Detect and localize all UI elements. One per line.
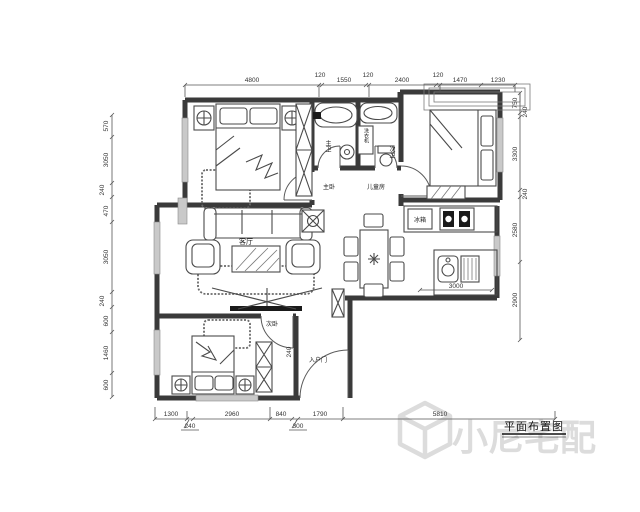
dining-area [344,214,404,297]
dim-label: 240 [522,106,529,117]
bed [192,336,234,394]
kitchen: 冰箱 [404,206,497,295]
coffee-table [232,246,280,272]
room-label-kids-room: 儿童房 [367,183,385,191]
room-label-second-bath: 次卫 [388,145,395,158]
wardrobe [256,342,272,392]
dim-label: 120 [363,72,374,79]
dim-label: 1230 [491,77,506,84]
drawing-title: 平面布置图 [504,420,564,433]
chair [344,237,358,256]
armchair-left [186,240,220,274]
wardrobe [296,104,312,196]
living-room: 客厅 [186,208,324,311]
sink [340,145,354,159]
dim-label: 570 [103,120,110,131]
dim-label: 840 [276,411,287,418]
master-bath: 主卫 [313,103,357,159]
tv-set [212,288,322,311]
washing-machine-label: 洗衣机 [363,127,369,144]
kitchen-sink [438,256,458,282]
sofa [204,208,312,240]
dim-label: 750 [512,97,519,108]
dim-label: 3000 [449,283,464,290]
dimensions-left: 570 3050 240 470 3050 240 600 1460 600 [99,113,114,399]
column-block [178,198,187,224]
dimension-kitchen: 3000 [418,283,494,292]
dim-label: 1460 [103,345,110,360]
double-bed [216,104,280,190]
dim-label: 2960 [225,411,240,418]
dim-entry-wall: 240 [286,346,293,357]
chair [344,262,358,281]
second-bath: 洗衣机 次卫 [358,103,397,166]
window-living-room [154,222,160,274]
washing-machine: 洗衣机 [358,126,373,154]
dim-label: 3050 [103,152,110,167]
fridge-label: 冰箱 [414,216,426,224]
nightstand-left [172,376,190,394]
room-label-master-bath: 主卫 [324,139,331,152]
faucet-icon [313,112,321,119]
dim-label: 300 [293,423,304,430]
dim-label: 2580 [512,222,519,237]
dim-label: 2900 [512,292,519,307]
dim-label: 1790 [313,411,328,418]
dim-label: 5810 [433,411,448,418]
chair [390,262,404,281]
dimensions-right: 750 240 3300 240 2580 2900 [512,91,529,342]
kids-room [427,110,496,199]
dim-label: 470 [103,205,110,216]
dim-label: 1300 [164,411,179,418]
dim-label: 1470 [453,77,468,84]
fridge: 冰箱 [408,209,432,229]
nightstand-right [236,376,254,394]
window-second-bedroom-bottom [196,395,258,401]
dim-label: 240 [99,295,106,306]
entry-door-label: 入户门 [309,356,327,364]
room-label-living: 客厅 [239,237,253,246]
chair [364,214,383,227]
dim-label: 240 [185,423,196,430]
room-label-master-bedroom: 主卧 [323,183,335,191]
side-table-plant [302,210,324,232]
second-bedroom: 次卧 [172,320,278,394]
window-master-bedroom [182,118,188,182]
dim-label: 120 [433,72,444,79]
watermark: 小尼宅配 [400,403,596,458]
kids-bed [430,110,496,186]
nightstand-left [194,106,214,130]
shoe-cabinet [332,289,344,317]
window-kids-room [497,118,503,172]
room-label-second-bedroom: 次卧 [266,320,278,328]
dim-label: 3300 [512,146,519,161]
window-second-bedroom-side [154,330,160,375]
chair [364,284,383,297]
floor-plan-page: 小尼宅配 [0,0,640,512]
floor-plan-drawing: 小尼宅配 [0,0,640,512]
dim-label: 600 [103,315,110,326]
master-bedroom [194,104,312,208]
dim-label: 3050 [103,249,110,264]
armchair-right [286,240,320,274]
kids-cabinet [427,186,465,199]
dim-label: 120 [315,72,326,79]
dim-label: 2400 [395,77,410,84]
dim-label: 240 [99,184,106,195]
dim-label: 600 [103,379,110,390]
dim-label: 4800 [245,77,260,84]
chair [390,237,404,256]
drain-rack [461,256,479,282]
dim-label: 240 [522,188,529,199]
dim-label: 1550 [337,77,352,84]
title-block: 平面布置图 [502,420,566,437]
stove [440,208,474,230]
